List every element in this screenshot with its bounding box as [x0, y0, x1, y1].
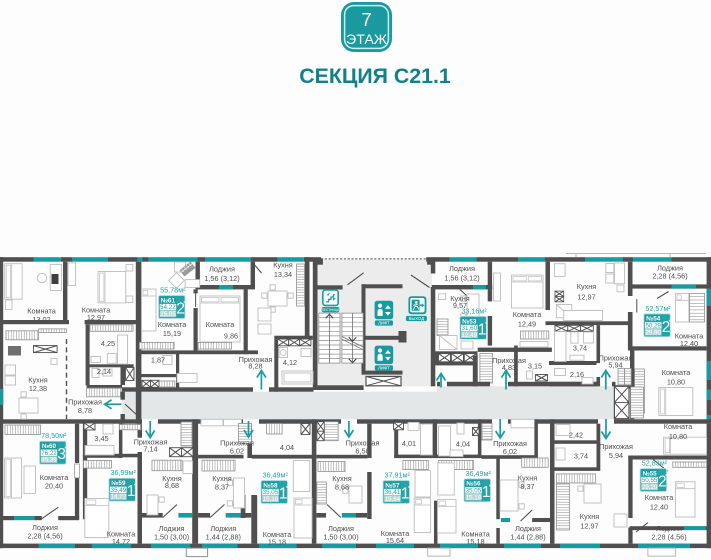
svg-text:ЛИФТ: ЛИФТ [378, 321, 390, 326]
svg-text:29,20: 29,20 [642, 484, 658, 491]
svg-text:2,42: 2,42 [569, 431, 583, 440]
svg-text:37,91м²: 37,91м² [385, 471, 411, 480]
svg-text:*: * [134, 484, 136, 490]
svg-text:55,78м²: 55,78м² [160, 286, 186, 295]
svg-text:8,37: 8,37 [520, 482, 534, 491]
svg-text:15,18: 15,18 [268, 537, 286, 546]
svg-text:12,49: 12,49 [518, 320, 536, 329]
svg-text:4,12: 4,12 [283, 358, 297, 367]
svg-text:*: * [485, 322, 487, 328]
svg-text:12,97: 12,97 [87, 313, 105, 322]
svg-text:12,40: 12,40 [680, 339, 698, 348]
svg-text:12,49: 12,49 [462, 332, 478, 339]
svg-text:5,94: 5,94 [609, 451, 623, 460]
svg-text:1,56 (3,12): 1,56 (3,12) [444, 274, 479, 283]
svg-text:78,50м²: 78,50м² [41, 431, 67, 440]
svg-text:8,68: 8,68 [165, 481, 179, 490]
svg-text:*: * [64, 447, 66, 453]
svg-text:Кухня: Кухня [273, 261, 293, 270]
svg-text:*: * [665, 474, 667, 480]
svg-text:1,87: 1,87 [151, 356, 165, 365]
svg-text:4,01: 4,01 [402, 439, 416, 448]
svg-text:1,44 (2,88): 1,44 (2,88) [206, 532, 241, 541]
svg-text:2,28 (4,56): 2,28 (4,56) [651, 532, 686, 541]
svg-text:52,57м²: 52,57м² [645, 304, 671, 313]
svg-text:4,25: 4,25 [101, 339, 115, 348]
svg-text:15,18: 15,18 [466, 537, 484, 546]
svg-text:12,40: 12,40 [650, 503, 668, 512]
svg-text:2,28 (4,56): 2,28 (4,56) [27, 531, 62, 540]
svg-text:1,50 (3,00): 1,50 (3,00) [154, 532, 189, 541]
svg-text:4,83: 4,83 [502, 363, 516, 372]
svg-text:15,18: 15,18 [466, 494, 482, 501]
svg-text:12,97: 12,97 [580, 521, 598, 530]
svg-text:13,34: 13,34 [274, 270, 292, 279]
svg-text:Комната: Комната [158, 320, 188, 329]
svg-text:6,02: 6,02 [503, 447, 517, 456]
svg-text:29,90: 29,90 [645, 329, 661, 336]
svg-text:36,49м²: 36,49м² [466, 469, 492, 478]
svg-text:2,28 (4,56): 2,28 (4,56) [652, 271, 687, 280]
svg-text:7,14: 7,14 [143, 445, 157, 454]
svg-text:Кухня: Кухня [580, 512, 600, 521]
svg-text:36,49м²: 36,49м² [263, 471, 289, 480]
svg-text:8,68: 8,68 [335, 483, 349, 492]
svg-text:ЛЕСТНИЦА: ЛЕСТНИЦА [322, 308, 340, 312]
svg-text:12,97: 12,97 [577, 293, 595, 302]
svg-text:*: * [183, 301, 185, 307]
svg-text:6,02: 6,02 [230, 446, 244, 455]
svg-text:Комната: Комната [662, 368, 692, 377]
svg-text:7: 7 [361, 9, 371, 30]
svg-text:4,04: 4,04 [456, 440, 470, 449]
svg-text:12,38: 12,38 [29, 384, 47, 393]
svg-text:46,39: 46,39 [41, 457, 57, 464]
svg-text:Комната: Комната [513, 310, 543, 319]
svg-text:8,37: 8,37 [215, 483, 229, 492]
svg-text:8,78: 8,78 [78, 406, 92, 415]
svg-text:*: * [408, 486, 410, 492]
svg-text:3,74: 3,74 [574, 452, 588, 461]
svg-text:Комната: Комната [206, 320, 236, 329]
svg-text:25,05: 25,05 [160, 311, 176, 318]
svg-text:*: * [489, 484, 491, 490]
svg-text:4,04: 4,04 [280, 443, 294, 452]
svg-text:ЭТАЖ: ЭТАЖ [346, 32, 387, 48]
svg-text:Прихожая: Прихожая [599, 442, 633, 451]
svg-text:36,99м²: 36,99м² [111, 468, 137, 477]
svg-text:1,56 (3,12): 1,56 (3,12) [204, 274, 239, 283]
svg-text:3,15: 3,15 [528, 362, 542, 371]
svg-text:Лоджия: Лоджия [449, 264, 475, 273]
svg-text:Кухня: Кухня [577, 282, 597, 291]
svg-text:2,16: 2,16 [570, 370, 584, 379]
svg-text:ВЫХОД: ВЫХОД [409, 316, 425, 321]
svg-text:3,45: 3,45 [94, 434, 108, 443]
svg-text:1,44 (2,88): 1,44 (2,88) [510, 532, 545, 541]
svg-text:10,80: 10,80 [667, 377, 685, 386]
svg-text:5,94: 5,94 [608, 361, 622, 370]
svg-text:52,83м²: 52,83м² [642, 459, 668, 468]
svg-text:15,18: 15,18 [263, 496, 279, 503]
svg-text:13,02: 13,02 [32, 315, 50, 324]
svg-text:*: * [286, 486, 288, 492]
svg-text:СЕКЦИЯ С21.1: СЕКЦИЯ С21.1 [299, 64, 451, 88]
svg-text:Комната: Комната [645, 493, 675, 502]
svg-text:15,64: 15,64 [385, 496, 401, 503]
svg-text:14,72: 14,72 [112, 537, 130, 546]
svg-text:Комната: Комната [664, 422, 694, 431]
svg-text:ЛИФТ: ЛИФТ [378, 366, 390, 371]
svg-text:1,50 (3,00): 1,50 (3,00) [323, 532, 358, 541]
svg-text:15,64: 15,64 [386, 536, 404, 545]
svg-text:2,14: 2,14 [97, 367, 111, 376]
svg-text:Лоджия: Лоджия [209, 265, 235, 274]
svg-text:15,19: 15,19 [163, 329, 181, 338]
svg-text:10,80: 10,80 [669, 432, 687, 441]
svg-text:3,74: 3,74 [573, 344, 587, 353]
svg-text:9,86: 9,86 [224, 332, 238, 341]
svg-text:6,58: 6,58 [355, 446, 369, 455]
svg-text:20,40: 20,40 [45, 482, 63, 491]
svg-text:33,16м²: 33,16м² [461, 306, 487, 315]
svg-text:*: * [669, 319, 671, 325]
svg-text:8,28: 8,28 [248, 362, 262, 371]
svg-text:14,72: 14,72 [111, 494, 127, 501]
